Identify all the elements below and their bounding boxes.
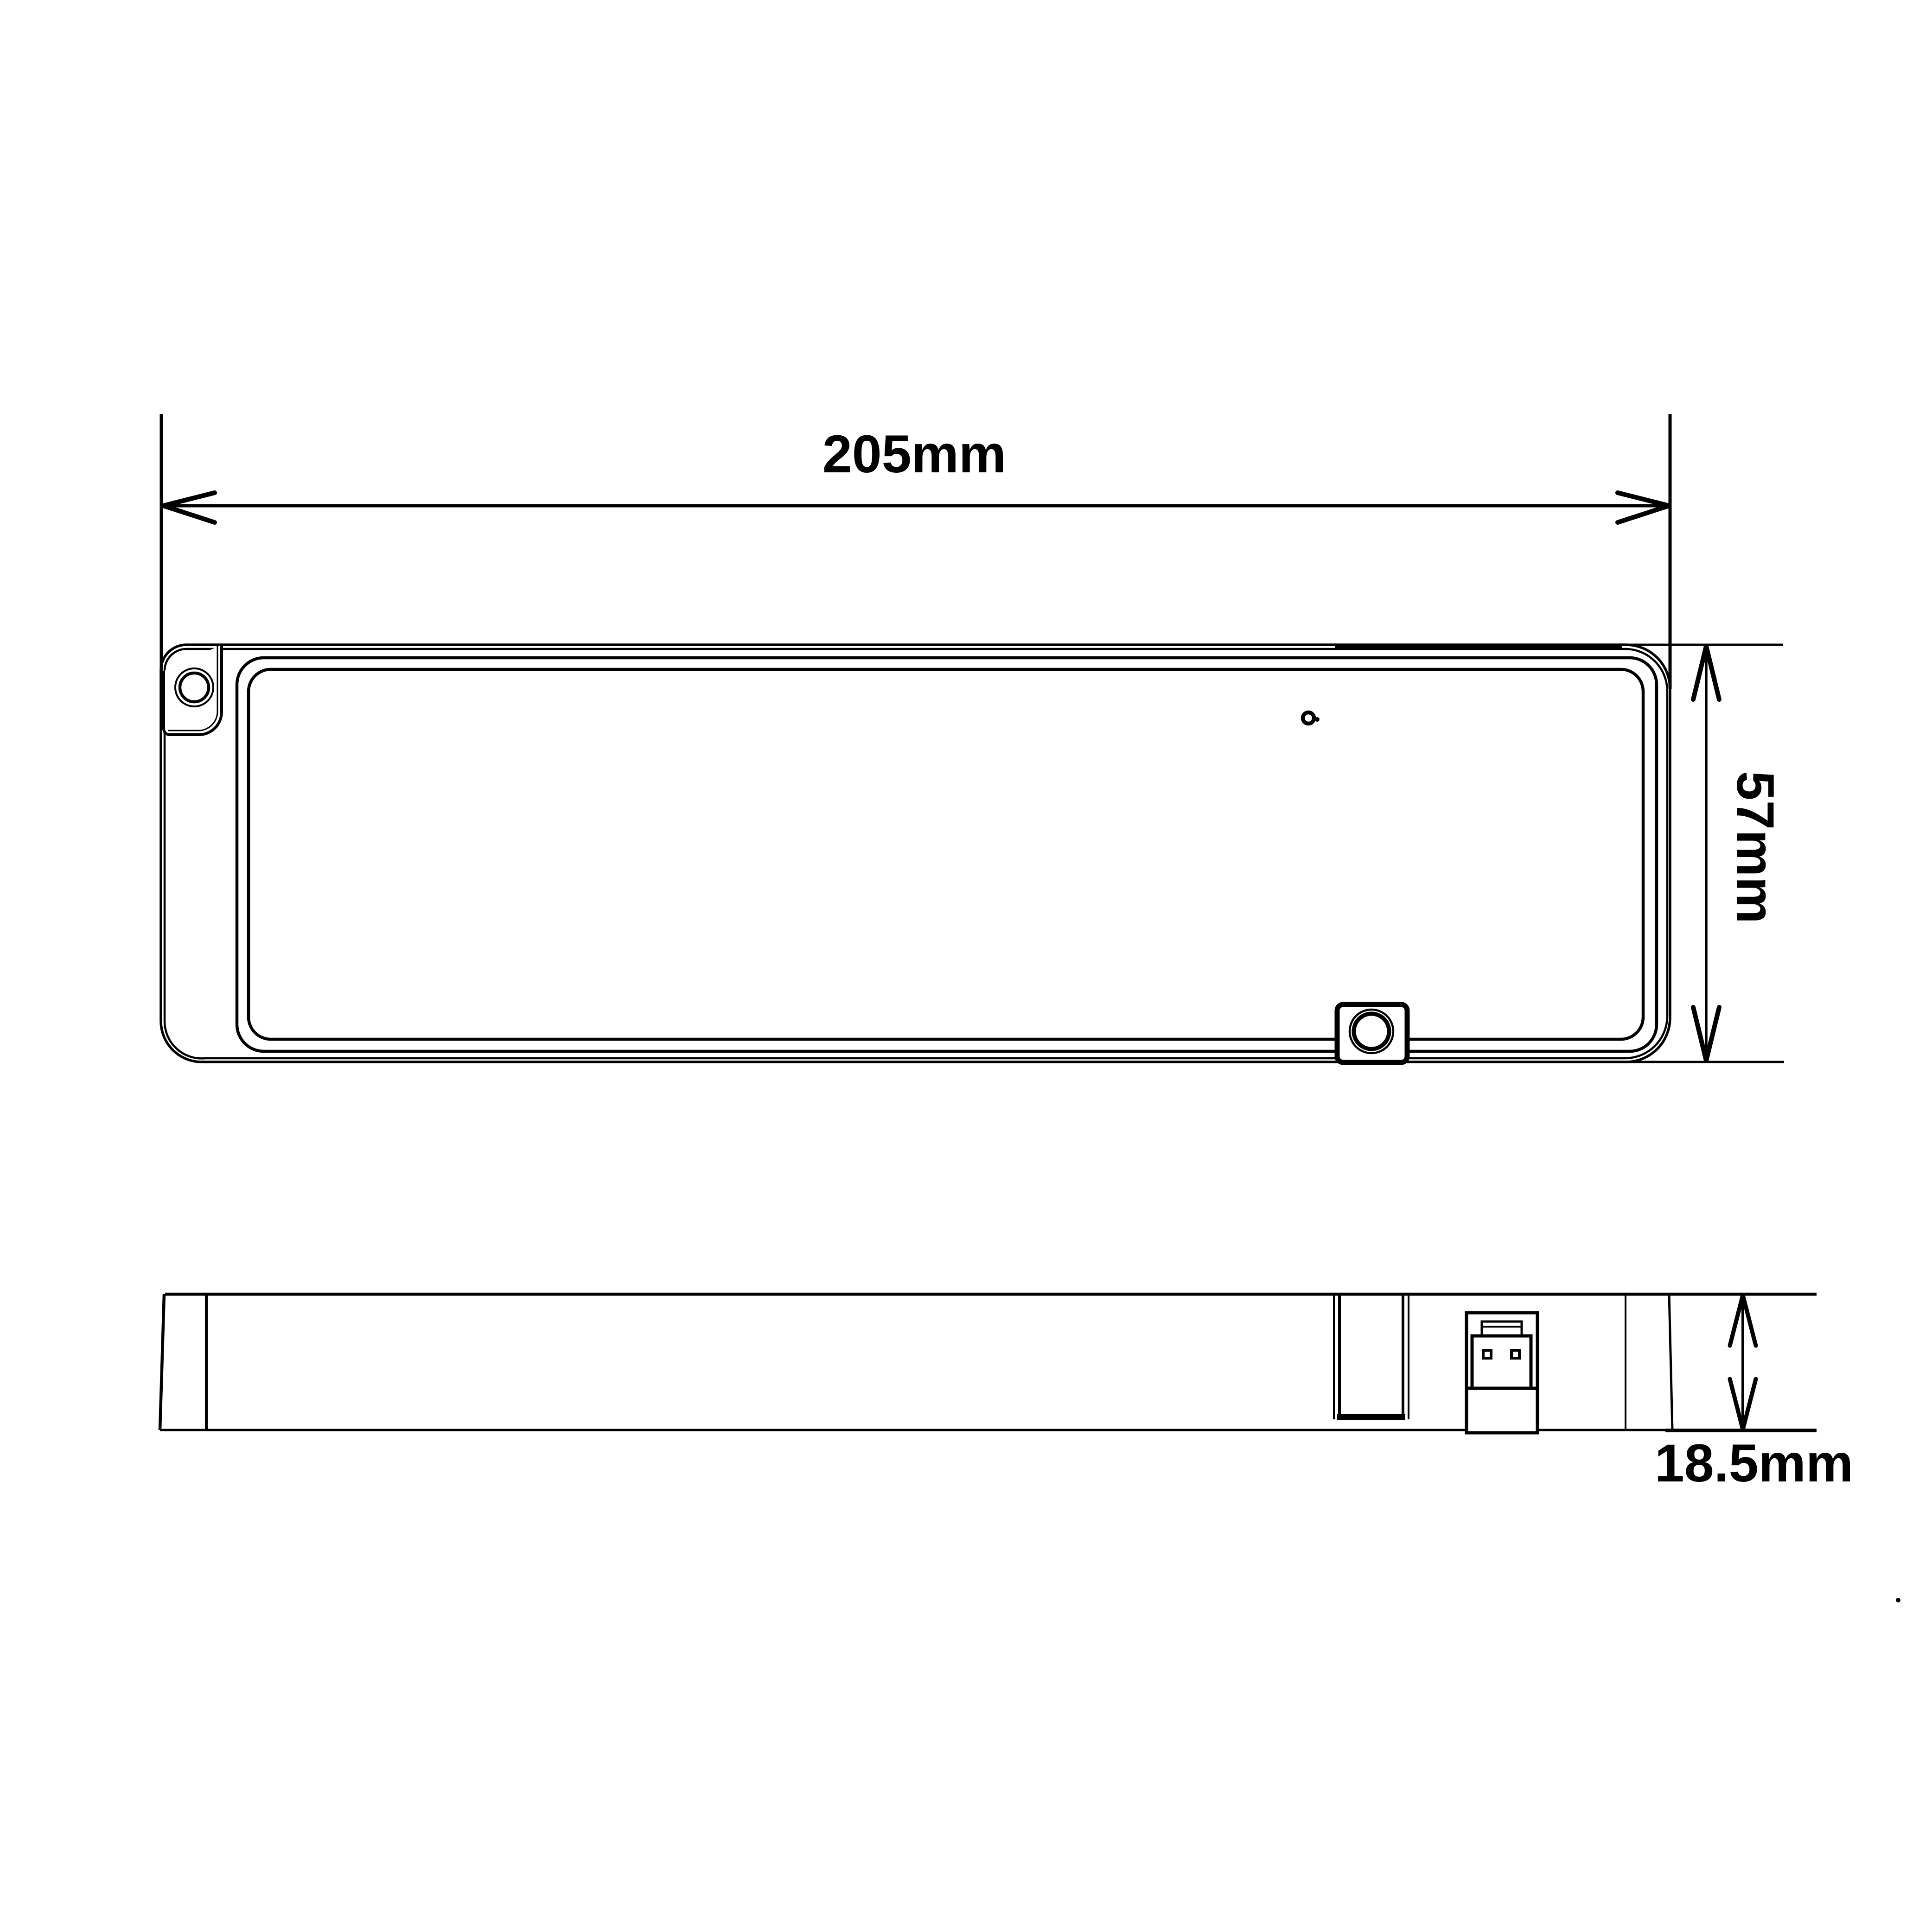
svg-text:18.5mm: 18.5mm xyxy=(1655,1434,1853,1493)
svg-text:205mm: 205mm xyxy=(823,425,1006,484)
svg-text:57mm: 57mm xyxy=(1726,771,1785,924)
